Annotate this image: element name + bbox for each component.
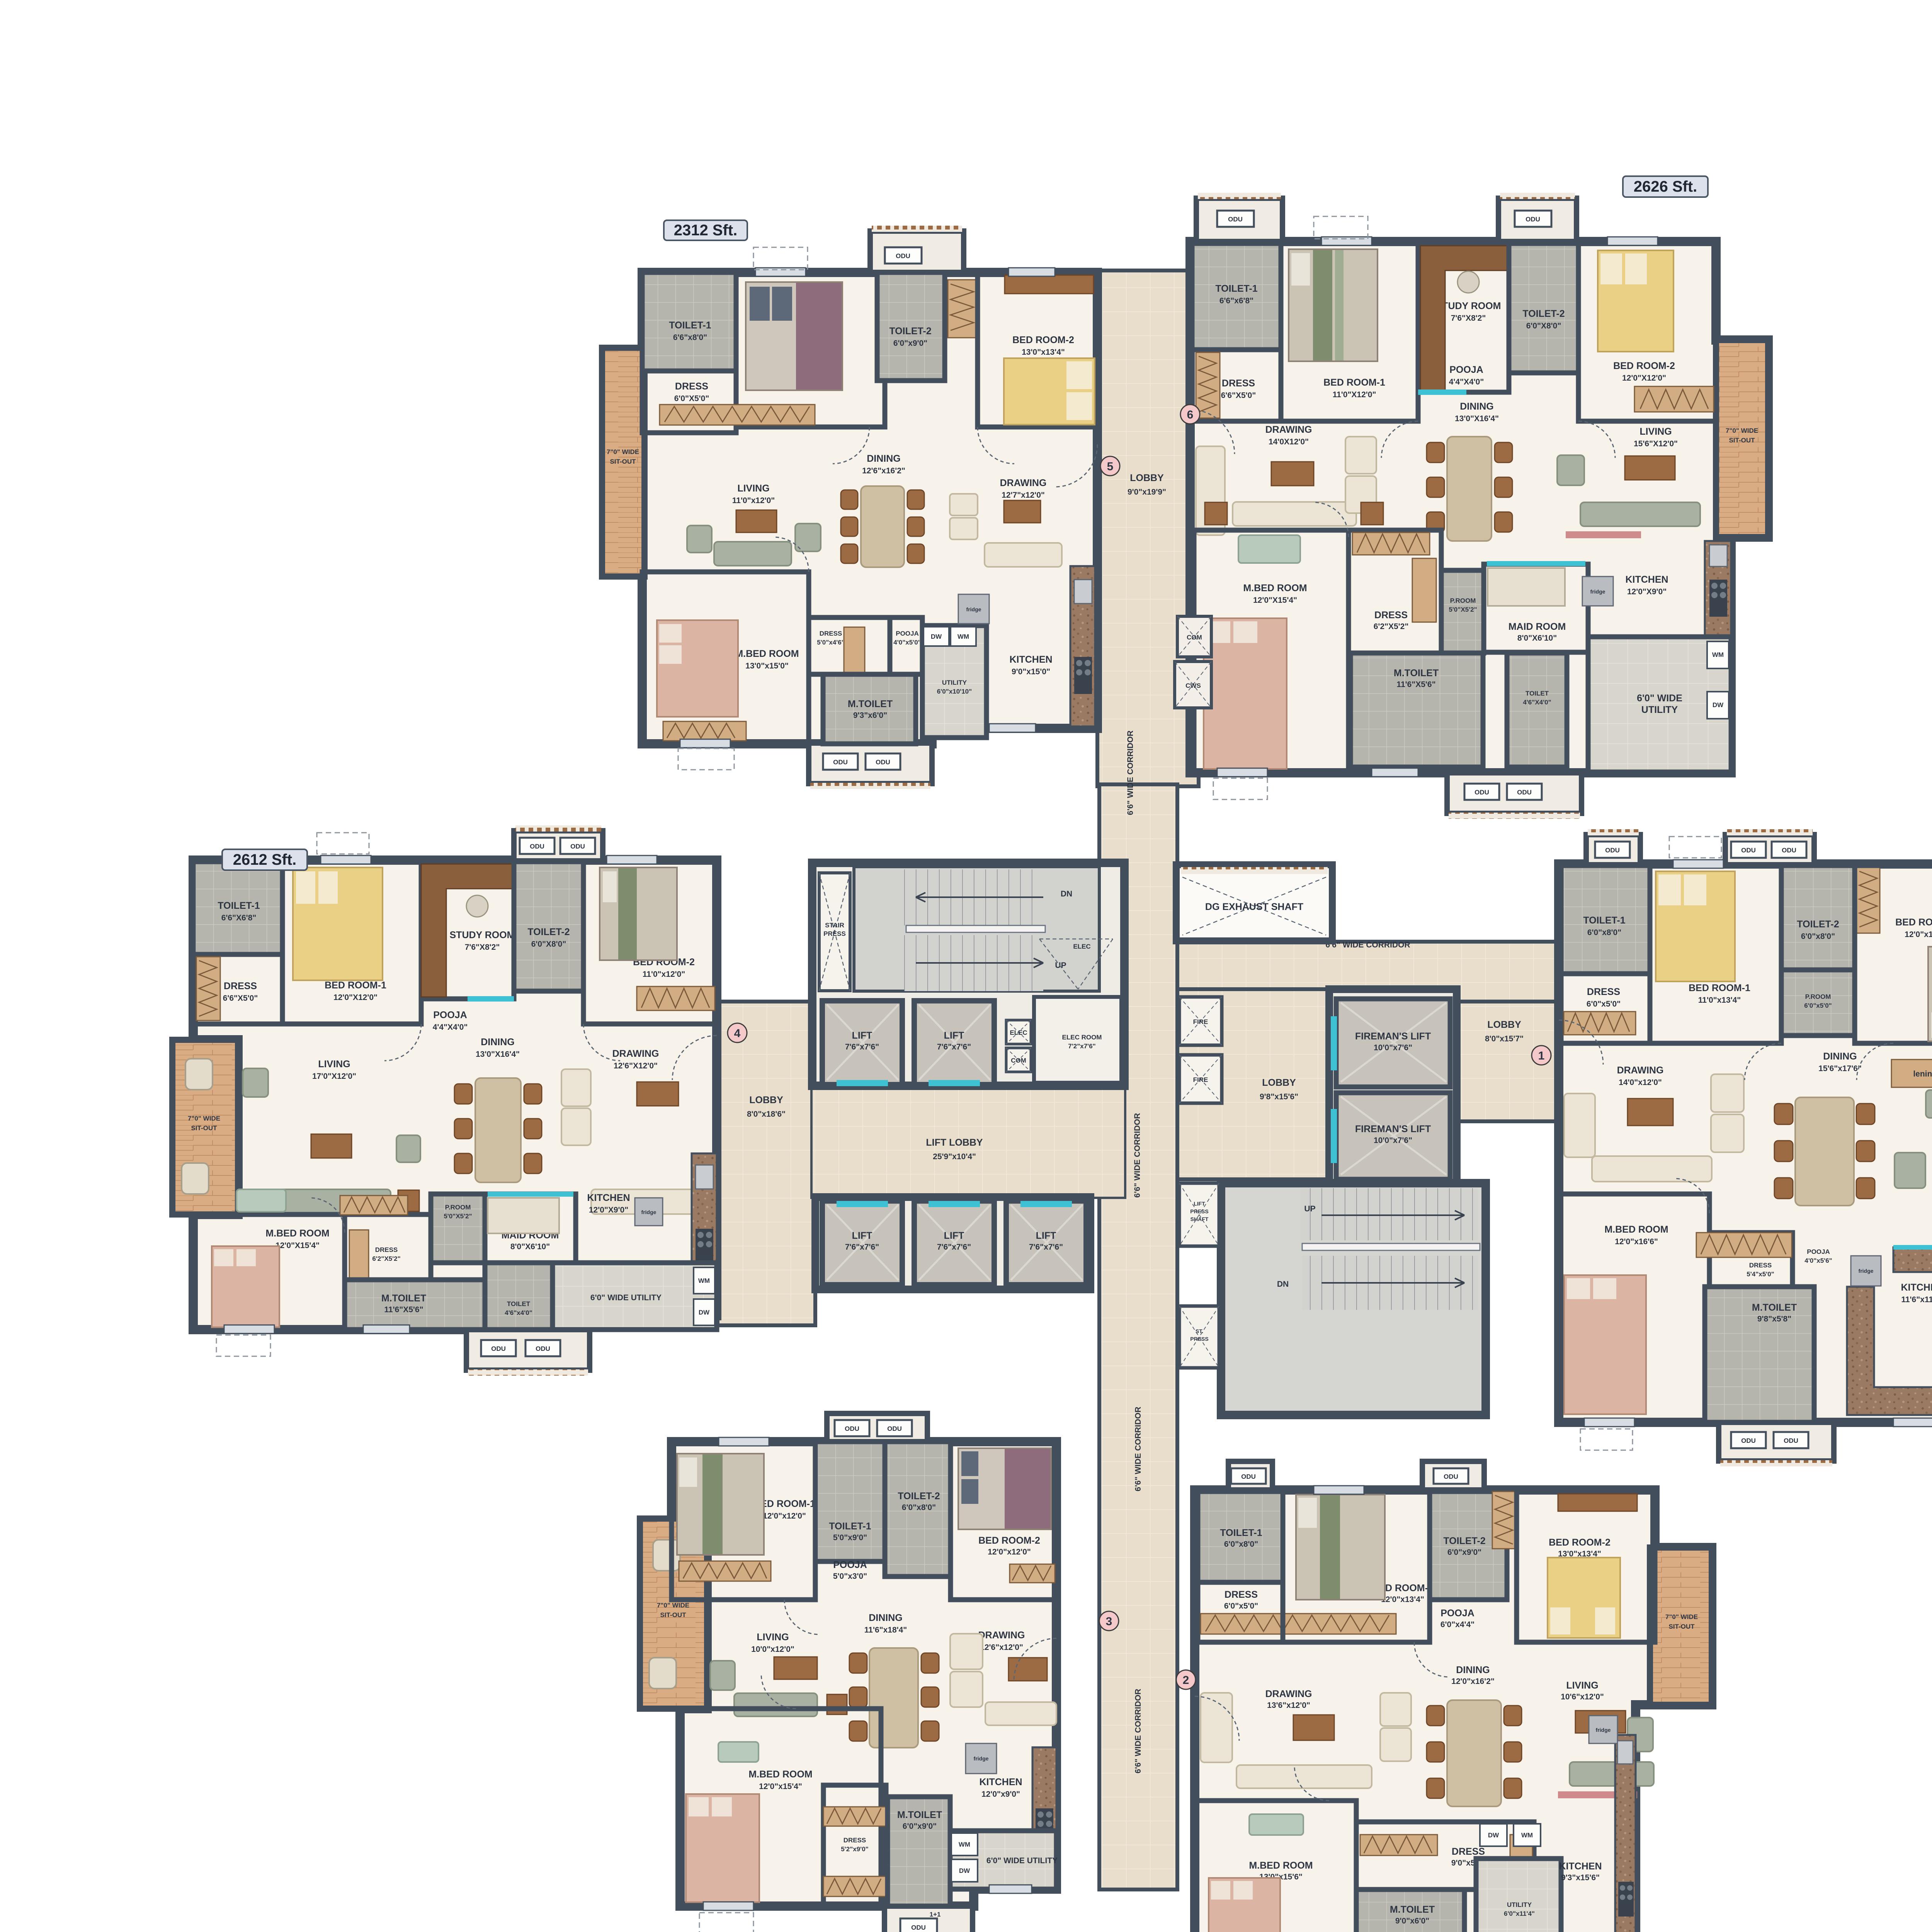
svg-text:2: 2 bbox=[1183, 1674, 1189, 1687]
svg-text:M.BED ROOM: M.BED ROOM bbox=[748, 1769, 812, 1780]
svg-text:ODU: ODU bbox=[1444, 1473, 1458, 1480]
svg-text:DRESS: DRESS bbox=[820, 630, 842, 637]
svg-text:ODU: ODU bbox=[1475, 789, 1489, 796]
svg-text:ODU: ODU bbox=[833, 759, 848, 766]
svg-text:10'0"x7'6": 10'0"x7'6" bbox=[1374, 1043, 1412, 1052]
svg-text:COM: COM bbox=[1187, 634, 1202, 641]
svg-text:25'9"x10'4": 25'9"x10'4" bbox=[933, 1152, 976, 1161]
svg-text:12'0"X9'0": 12'0"X9'0" bbox=[1627, 587, 1667, 596]
svg-text:12'0"X12'0": 12'0"X12'0" bbox=[1622, 374, 1666, 383]
svg-text:DRAWING: DRAWING bbox=[1265, 424, 1312, 435]
svg-text:COM: COM bbox=[1011, 1057, 1026, 1064]
svg-text:5'4"x5'0": 5'4"x5'0" bbox=[1747, 1270, 1774, 1278]
svg-text:8'0"X6'10": 8'0"X6'10" bbox=[1517, 634, 1557, 643]
svg-text:DRESS: DRESS bbox=[1225, 1589, 1258, 1600]
svg-text:6'0"x5'0": 6'0"x5'0" bbox=[1587, 1000, 1621, 1009]
svg-text:M.TOILET: M.TOILET bbox=[1390, 1904, 1435, 1915]
svg-text:TOILET-2: TOILET-2 bbox=[1443, 1536, 1485, 1546]
svg-text:1: 1 bbox=[1538, 1049, 1545, 1062]
svg-text:DRAWING: DRAWING bbox=[1265, 1689, 1312, 1699]
svg-text:UP: UP bbox=[1304, 1204, 1315, 1213]
svg-text:12'0"x16'6": 12'0"x16'6" bbox=[1615, 1237, 1658, 1246]
svg-text:15'6"x17'6": 15'6"x17'6" bbox=[1818, 1064, 1862, 1073]
svg-text:DRAWING: DRAWING bbox=[978, 1630, 1025, 1641]
svg-text:LIFT: LIFT bbox=[944, 1030, 964, 1041]
svg-text:DINING: DINING bbox=[867, 453, 901, 464]
svg-text:LIFT: LIFT bbox=[1194, 1201, 1205, 1207]
svg-text:ODU: ODU bbox=[845, 1425, 859, 1432]
svg-text:7'6"X8'2": 7'6"X8'2" bbox=[465, 943, 500, 952]
svg-text:TOILET-2: TOILET-2 bbox=[527, 927, 570, 937]
svg-text:11'6"X5'6": 11'6"X5'6" bbox=[384, 1305, 423, 1314]
svg-text:fridge: fridge bbox=[1596, 1727, 1611, 1733]
svg-text:TOILET-1: TOILET-1 bbox=[218, 900, 260, 911]
svg-text:6'2"X5'2": 6'2"X5'2" bbox=[372, 1255, 400, 1262]
svg-text:12'7"x12'0": 12'7"x12'0" bbox=[1002, 491, 1045, 500]
svg-text:2312 Sft.: 2312 Sft. bbox=[674, 222, 738, 239]
svg-text:7'6"x7'6": 7'6"x7'6" bbox=[845, 1243, 879, 1252]
svg-text:TOILET-2: TOILET-2 bbox=[898, 1491, 940, 1502]
svg-text:P.ROOM: P.ROOM bbox=[1450, 597, 1476, 604]
svg-text:12'0"x15'4": 12'0"x15'4" bbox=[759, 1782, 802, 1791]
svg-text:7"0" WIDE: 7"0" WIDE bbox=[657, 1602, 689, 1609]
svg-text:BED ROOM-2: BED ROOM-2 bbox=[978, 1535, 1040, 1546]
svg-text:10'6"x12'0": 10'6"x12'0" bbox=[1561, 1692, 1604, 1701]
svg-text:11'6"X5'6": 11'6"X5'6" bbox=[1396, 680, 1435, 689]
svg-text:4: 4 bbox=[734, 1027, 741, 1040]
svg-text:12'0"X12'0": 12'0"X12'0" bbox=[333, 993, 378, 1002]
svg-text:DRAWING: DRAWING bbox=[1617, 1065, 1664, 1076]
svg-text:TOILET-2: TOILET-2 bbox=[1522, 308, 1565, 319]
svg-text:6'0"x9'0": 6'0"x9'0" bbox=[903, 1822, 937, 1831]
svg-text:TOILET-1: TOILET-1 bbox=[669, 320, 711, 331]
svg-text:PRESS: PRESS bbox=[823, 930, 846, 937]
svg-text:7"0" WIDE: 7"0" WIDE bbox=[1665, 1613, 1698, 1621]
svg-text:KITCHEN: KITCHEN bbox=[1901, 1282, 1932, 1293]
svg-text:13'0"X16'4": 13'0"X16'4" bbox=[476, 1050, 520, 1059]
svg-text:3: 3 bbox=[1106, 1615, 1112, 1628]
svg-text:DRESS: DRESS bbox=[224, 981, 257, 992]
svg-text:DRESS: DRESS bbox=[1222, 378, 1255, 389]
svg-text:7'6"x7'6": 7'6"x7'6" bbox=[845, 1043, 879, 1051]
svg-text:DRAWING: DRAWING bbox=[612, 1048, 659, 1059]
svg-text:WM: WM bbox=[959, 1841, 970, 1848]
svg-text:LIFT LOBBY: LIFT LOBBY bbox=[926, 1137, 983, 1148]
svg-text:UTILITY: UTILITY bbox=[1507, 1901, 1532, 1908]
svg-text:15'6"X12'0": 15'6"X12'0" bbox=[1634, 439, 1678, 448]
svg-text:LIVING: LIVING bbox=[1639, 426, 1672, 437]
svg-text:UTILITY: UTILITY bbox=[1641, 704, 1678, 715]
svg-text:7'6"x7'6": 7'6"x7'6" bbox=[937, 1243, 971, 1252]
svg-text:POOJA: POOJA bbox=[833, 1560, 867, 1570]
svg-text:BED ROOM-2: BED ROOM-2 bbox=[1895, 917, 1932, 928]
svg-text:7'2"x7'6": 7'2"x7'6" bbox=[1068, 1043, 1095, 1050]
svg-text:6'6"x6'8": 6'6"x6'8" bbox=[1219, 296, 1253, 305]
svg-text:6'6"X5'0": 6'6"X5'0" bbox=[1221, 391, 1256, 400]
svg-text:DRESS: DRESS bbox=[1587, 986, 1620, 997]
svg-text:M.BED ROOM: M.BED ROOM bbox=[265, 1228, 329, 1239]
svg-text:POOJA: POOJA bbox=[433, 1010, 467, 1020]
svg-text:fridge: fridge bbox=[966, 606, 981, 612]
svg-text:ODU: ODU bbox=[1782, 847, 1796, 854]
svg-text:7"0" WIDE: 7"0" WIDE bbox=[188, 1115, 220, 1122]
svg-text:TOILET: TOILET bbox=[1526, 690, 1549, 697]
svg-text:DW: DW bbox=[959, 1867, 970, 1874]
svg-text:6'0"x9'0": 6'0"x9'0" bbox=[1447, 1548, 1481, 1557]
svg-text:ODU: ODU bbox=[1605, 847, 1620, 854]
svg-text:9'3"x6'0": 9'3"x6'0" bbox=[853, 711, 887, 720]
svg-text:fridge: fridge bbox=[1859, 1268, 1874, 1274]
svg-text:M.TOILET: M.TOILET bbox=[848, 699, 893, 709]
svg-text:8'0"x15'7": 8'0"x15'7" bbox=[1485, 1034, 1524, 1043]
svg-text:DN: DN bbox=[1277, 1280, 1289, 1289]
svg-text:5'0"x9'0": 5'0"x9'0" bbox=[833, 1533, 867, 1542]
svg-text:DINING: DINING bbox=[1823, 1051, 1857, 1062]
svg-text:ODU: ODU bbox=[1741, 1437, 1756, 1444]
svg-text:ST.: ST. bbox=[1196, 1328, 1203, 1334]
svg-text:DW: DW bbox=[1488, 1832, 1499, 1839]
svg-text:6'0"X8'0": 6'0"X8'0" bbox=[531, 940, 566, 949]
svg-text:9'8"x15'6": 9'8"x15'6" bbox=[1260, 1092, 1298, 1101]
svg-text:TOILET: TOILET bbox=[507, 1300, 531, 1308]
svg-text:9'0"x15'0": 9'0"x15'0" bbox=[1012, 667, 1050, 676]
svg-text:SIT-OUT: SIT-OUT bbox=[660, 1611, 686, 1619]
svg-text:PRESS: PRESS bbox=[1190, 1208, 1208, 1214]
svg-text:12'0"X15'4": 12'0"X15'4" bbox=[276, 1241, 320, 1250]
svg-text:DW: DW bbox=[1713, 701, 1724, 709]
svg-text:STUDY ROOM: STUDY ROOM bbox=[450, 930, 515, 940]
svg-text:LIVING: LIVING bbox=[318, 1059, 350, 1070]
svg-text:6'0" WIDE: 6'0" WIDE bbox=[1637, 693, 1682, 704]
svg-text:4'6"x4'0": 4'6"x4'0" bbox=[505, 1309, 532, 1316]
svg-text:13'0"x13'4": 13'0"x13'4" bbox=[1022, 348, 1065, 357]
svg-text:12'6"x16'2": 12'6"x16'2" bbox=[862, 466, 905, 475]
svg-text:DG EXHAUST SHAFT: DG EXHAUST SHAFT bbox=[1205, 901, 1303, 912]
svg-text:11'6"x18'4": 11'6"x18'4" bbox=[864, 1626, 907, 1634]
svg-text:6'6"x8'0": 6'6"x8'0" bbox=[673, 333, 707, 342]
svg-text:DRESS: DRESS bbox=[675, 381, 708, 392]
svg-text:6'0"x8'0": 6'0"x8'0" bbox=[1224, 1540, 1258, 1549]
svg-text:ODU: ODU bbox=[1784, 1437, 1798, 1444]
svg-text:11'0"x12'0": 11'0"x12'0" bbox=[732, 496, 775, 505]
svg-text:TOILET-1: TOILET-1 bbox=[1583, 915, 1625, 926]
svg-text:12'6"x12'0": 12'6"x12'0" bbox=[980, 1643, 1023, 1652]
svg-text:M.TOILET: M.TOILET bbox=[381, 1293, 426, 1304]
svg-text:5'0"x3'0": 5'0"x3'0" bbox=[833, 1572, 867, 1581]
svg-text:BED ROOM-1: BED ROOM-1 bbox=[325, 980, 386, 991]
svg-text:12'0"x12'0": 12'0"x12'0" bbox=[988, 1548, 1031, 1556]
svg-text:11'0"X12'0": 11'0"X12'0" bbox=[1333, 390, 1376, 399]
svg-text:LIVING: LIVING bbox=[1566, 1680, 1598, 1691]
svg-text:KITCHEN: KITCHEN bbox=[1625, 574, 1668, 585]
svg-text:5: 5 bbox=[1107, 460, 1114, 473]
svg-text:DINING: DINING bbox=[1460, 401, 1494, 412]
svg-text:SHAFT: SHAFT bbox=[1190, 1216, 1209, 1222]
svg-text:ELEC ROOM: ELEC ROOM bbox=[1062, 1034, 1102, 1041]
svg-text:6'0"X8'0": 6'0"X8'0" bbox=[1526, 321, 1561, 330]
svg-text:DN: DN bbox=[1061, 889, 1072, 898]
svg-text:2612 Sft.: 2612 Sft. bbox=[233, 851, 297, 868]
svg-text:UTILITY: UTILITY bbox=[942, 679, 967, 686]
svg-text:LIFT: LIFT bbox=[852, 1030, 872, 1041]
svg-text:M.BED ROOM: M.BED ROOM bbox=[1604, 1224, 1668, 1235]
svg-text:12'0"X9'0": 12'0"X9'0" bbox=[589, 1206, 628, 1214]
svg-text:BED ROOM-2: BED ROOM-2 bbox=[1613, 361, 1675, 371]
svg-text:14'0"x12'0": 14'0"x12'0" bbox=[1619, 1078, 1662, 1087]
svg-text:WM: WM bbox=[1712, 651, 1724, 658]
svg-text:fridge: fridge bbox=[974, 1755, 989, 1762]
svg-text:6'0"x8'0": 6'0"x8'0" bbox=[902, 1503, 936, 1512]
svg-text:POOJA: POOJA bbox=[1440, 1608, 1475, 1619]
svg-text:12'0"x12'0": 12'0"x12'0" bbox=[763, 1512, 806, 1520]
svg-text:BED ROOM-1: BED ROOM-1 bbox=[1323, 377, 1385, 388]
svg-text:DRESS: DRESS bbox=[1749, 1262, 1772, 1269]
svg-text:12'0"x16'2": 12'0"x16'2" bbox=[1451, 1677, 1495, 1686]
svg-text:6'0"x5'0": 6'0"x5'0" bbox=[1224, 1602, 1258, 1611]
svg-text:9'0"x19'9": 9'0"x19'9" bbox=[1128, 488, 1166, 497]
svg-text:KITCHEN: KITCHEN bbox=[1009, 654, 1052, 665]
svg-text:ODU: ODU bbox=[530, 843, 544, 850]
svg-text:2626 Sft.: 2626 Sft. bbox=[1634, 178, 1697, 195]
svg-text:ODU: ODU bbox=[570, 843, 585, 850]
svg-text:FIRE: FIRE bbox=[1193, 1076, 1208, 1083]
svg-text:FIRE: FIRE bbox=[1193, 1018, 1208, 1026]
svg-text:WM: WM bbox=[698, 1277, 710, 1284]
svg-text:SIT-OUT: SIT-OUT bbox=[191, 1124, 217, 1132]
svg-text:BED ROOM-1: BED ROOM-1 bbox=[1689, 983, 1750, 993]
svg-text:BED ROOM-2: BED ROOM-2 bbox=[1012, 335, 1074, 345]
svg-text:ODU: ODU bbox=[896, 252, 910, 260]
svg-text:M.BED ROOM: M.BED ROOM bbox=[1249, 1860, 1313, 1871]
svg-text:4'6"X4'0": 4'6"X4'0" bbox=[1523, 699, 1551, 706]
svg-text:5'0"X5'2": 5'0"X5'2" bbox=[444, 1213, 472, 1220]
svg-text:5'2"x9'0": 5'2"x9'0" bbox=[841, 1845, 868, 1853]
svg-text:6: 6 bbox=[1187, 408, 1194, 421]
svg-text:LOBBY: LOBBY bbox=[1487, 1019, 1521, 1030]
svg-text:M.TOILET: M.TOILET bbox=[1394, 668, 1439, 679]
svg-text:DW: DW bbox=[931, 633, 942, 640]
svg-text:ODU: ODU bbox=[876, 759, 890, 766]
svg-text:6'6" WIDE CORRIDOR: 6'6" WIDE CORRIDOR bbox=[1325, 940, 1410, 949]
svg-text:TOILET-1: TOILET-1 bbox=[829, 1521, 871, 1532]
svg-text:LIVING: LIVING bbox=[757, 1632, 789, 1643]
svg-text:5'0"x4'6": 5'0"x4'6" bbox=[817, 639, 844, 646]
svg-text:12'0"x13'4": 12'0"x13'4" bbox=[1381, 1595, 1424, 1604]
svg-text:6'0"x8'0": 6'0"x8'0" bbox=[1801, 932, 1835, 941]
svg-text:ODU: ODU bbox=[1517, 789, 1532, 796]
svg-text:DRESS: DRESS bbox=[1374, 610, 1408, 621]
svg-text:KITCHEN: KITCHEN bbox=[1559, 1861, 1602, 1872]
svg-text:6'0"x9'0": 6'0"x9'0" bbox=[893, 339, 927, 348]
svg-text:KITCHEN: KITCHEN bbox=[587, 1192, 630, 1203]
svg-text:lenin unit: lenin unit bbox=[1913, 1070, 1932, 1078]
svg-text:TOILET-2: TOILET-2 bbox=[1797, 919, 1839, 930]
svg-text:LIFT: LIFT bbox=[852, 1230, 872, 1241]
svg-text:DINING: DINING bbox=[481, 1037, 515, 1048]
svg-text:POOJA: POOJA bbox=[1449, 364, 1483, 375]
svg-text:1+1: 1+1 bbox=[930, 1911, 941, 1918]
svg-text:KITCHEN: KITCHEN bbox=[979, 1777, 1022, 1787]
svg-text:4'0"x5'6": 4'0"x5'6" bbox=[1804, 1257, 1832, 1264]
svg-text:8'0"X6'10": 8'0"X6'10" bbox=[510, 1242, 550, 1251]
svg-text:DRESS: DRESS bbox=[375, 1246, 398, 1253]
svg-text:WM: WM bbox=[1521, 1832, 1533, 1839]
svg-text:7'6"x7'6": 7'6"x7'6" bbox=[937, 1043, 971, 1051]
svg-text:6'0" WIDE UTILITY: 6'0" WIDE UTILITY bbox=[590, 1293, 662, 1302]
svg-text:LIVING: LIVING bbox=[737, 483, 769, 494]
svg-text:10'0"x12'0": 10'0"x12'0" bbox=[751, 1645, 794, 1654]
svg-text:6'6" WIDE CORRIDOR: 6'6" WIDE CORRIDOR bbox=[1134, 1689, 1143, 1773]
svg-text:WM: WM bbox=[957, 633, 969, 640]
svg-text:12'6"X12'0": 12'6"X12'0" bbox=[614, 1061, 658, 1070]
svg-text:ODU: ODU bbox=[536, 1345, 550, 1352]
svg-text:M.TOILET: M.TOILET bbox=[1752, 1302, 1797, 1313]
svg-text:PRESS: PRESS bbox=[1190, 1336, 1208, 1342]
svg-text:6'0"x11'4": 6'0"x11'4" bbox=[1504, 1910, 1535, 1917]
svg-text:6'6" WIDE CORRIDOR: 6'6" WIDE CORRIDOR bbox=[1133, 1113, 1142, 1197]
svg-text:6'6"X6'8": 6'6"X6'8" bbox=[221, 913, 257, 922]
svg-text:LIFT: LIFT bbox=[1036, 1230, 1056, 1241]
svg-text:6'6" WIDE CORRIDOR: 6'6" WIDE CORRIDOR bbox=[1134, 1406, 1143, 1491]
svg-text:11'0"x12'0": 11'0"x12'0" bbox=[643, 970, 685, 979]
svg-text:LOBBY: LOBBY bbox=[749, 1095, 783, 1105]
svg-text:DINING: DINING bbox=[1456, 1665, 1490, 1675]
svg-text:LOBBY: LOBBY bbox=[1130, 473, 1164, 483]
svg-text:BED ROOM-2: BED ROOM-2 bbox=[1549, 1537, 1611, 1548]
svg-text:11'6"x11'0": 11'6"x11'0" bbox=[1901, 1295, 1932, 1304]
svg-text:4'0"x5'0": 4'0"x5'0" bbox=[893, 639, 921, 646]
svg-text:DINING: DINING bbox=[869, 1612, 903, 1623]
svg-text:6'0"x8'0": 6'0"x8'0" bbox=[1587, 928, 1621, 937]
svg-text:SIT-OUT: SIT-OUT bbox=[1668, 1623, 1695, 1630]
svg-text:DRESS: DRESS bbox=[844, 1837, 866, 1844]
svg-text:4'4"X4'0": 4'4"X4'0" bbox=[1449, 378, 1484, 386]
svg-text:POOJA: POOJA bbox=[1807, 1248, 1830, 1255]
svg-text:7"0" WIDE: 7"0" WIDE bbox=[607, 448, 639, 456]
svg-text:UP: UP bbox=[1055, 961, 1066, 970]
svg-text:fridge: fridge bbox=[1590, 588, 1605, 595]
svg-text:FIREMAN'S LIFT: FIREMAN'S LIFT bbox=[1355, 1124, 1431, 1134]
svg-text:13'0"X16'4": 13'0"X16'4" bbox=[1455, 414, 1499, 423]
svg-text:7'6"x7'6": 7'6"x7'6" bbox=[1029, 1243, 1063, 1252]
svg-text:ELEC: ELEC bbox=[1073, 943, 1090, 950]
svg-text:fridge: fridge bbox=[641, 1209, 656, 1215]
svg-text:P.ROOM: P.ROOM bbox=[1805, 993, 1831, 1000]
svg-text:MAID ROOM: MAID ROOM bbox=[1509, 621, 1566, 632]
svg-text:TOILET-1: TOILET-1 bbox=[1220, 1527, 1262, 1538]
svg-text:TOILET-1: TOILET-1 bbox=[1215, 283, 1257, 294]
svg-text:CWS: CWS bbox=[1185, 682, 1201, 689]
svg-text:6'0"x4'4": 6'0"x4'4" bbox=[1440, 1620, 1475, 1629]
svg-text:9'8"x5'8": 9'8"x5'8" bbox=[1757, 1315, 1791, 1323]
svg-text:7'6"X8'2": 7'6"X8'2" bbox=[1451, 314, 1486, 323]
svg-text:7"0" WIDE: 7"0" WIDE bbox=[1726, 427, 1758, 434]
svg-text:STAIR: STAIR bbox=[825, 922, 844, 929]
svg-text:13'6"x12'0": 13'6"x12'0" bbox=[1267, 1701, 1310, 1710]
svg-text:12'0"x9'0": 12'0"x9'0" bbox=[981, 1790, 1020, 1799]
svg-text:LIFT: LIFT bbox=[944, 1230, 964, 1241]
svg-text:13'0"x15'0": 13'0"x15'0" bbox=[745, 662, 789, 670]
svg-text:ODU: ODU bbox=[911, 1924, 926, 1931]
svg-text:TOILET-2: TOILET-2 bbox=[889, 326, 931, 337]
svg-text:6'2"X5'2": 6'2"X5'2" bbox=[1374, 622, 1409, 631]
svg-text:6'0" WIDE UTILITY: 6'0" WIDE UTILITY bbox=[986, 1856, 1058, 1865]
svg-text:6'0"x10'10": 6'0"x10'10" bbox=[937, 688, 972, 695]
svg-text:6'6"X5'0": 6'6"X5'0" bbox=[223, 994, 258, 1003]
svg-text:6'0"x5'0": 6'0"x5'0" bbox=[1804, 1002, 1832, 1009]
svg-text:12'0"x13'4": 12'0"x13'4" bbox=[1905, 930, 1932, 939]
svg-text:ODU: ODU bbox=[887, 1425, 902, 1432]
svg-text:ODU: ODU bbox=[1741, 847, 1756, 854]
svg-text:ODU: ODU bbox=[491, 1345, 506, 1352]
svg-text:6'0"X5'0": 6'0"X5'0" bbox=[674, 394, 709, 403]
svg-text:ODU: ODU bbox=[1241, 1473, 1256, 1480]
svg-text:SIT-OUT: SIT-OUT bbox=[610, 458, 636, 465]
svg-text:4'4"X4'0": 4'4"X4'0" bbox=[433, 1023, 468, 1032]
svg-text:M.BED ROOM: M.BED ROOM bbox=[735, 648, 799, 659]
svg-text:LOBBY: LOBBY bbox=[1262, 1077, 1296, 1088]
svg-text:P.ROOM: P.ROOM bbox=[445, 1204, 471, 1211]
svg-text:10'0"x7'6": 10'0"x7'6" bbox=[1374, 1136, 1412, 1145]
svg-text:14'0X12'0": 14'0X12'0" bbox=[1269, 437, 1309, 446]
svg-text:M.TOILET: M.TOILET bbox=[897, 1810, 942, 1820]
svg-text:9'3"x15'6": 9'3"x15'6" bbox=[1561, 1873, 1600, 1882]
svg-text:17'0"X12'0": 17'0"X12'0" bbox=[312, 1072, 356, 1081]
svg-text:ODU: ODU bbox=[1228, 216, 1243, 223]
svg-text:12'0"X15'4": 12'0"X15'4" bbox=[1253, 596, 1297, 605]
svg-text:SIT-OUT: SIT-OUT bbox=[1729, 437, 1755, 444]
svg-text:6'6" WIDE CORRIDOR: 6'6" WIDE CORRIDOR bbox=[1126, 730, 1135, 815]
svg-text:DW: DW bbox=[699, 1309, 710, 1316]
svg-text:M.BED ROOM: M.BED ROOM bbox=[1243, 583, 1307, 594]
svg-text:9'0"x6'0": 9'0"x6'0" bbox=[1395, 1917, 1429, 1925]
svg-text:DRAWING: DRAWING bbox=[1000, 478, 1047, 488]
svg-text:11'0"x13'4": 11'0"x13'4" bbox=[1698, 996, 1741, 1005]
svg-text:ELEC: ELEC bbox=[1010, 1029, 1027, 1036]
svg-text:ODU: ODU bbox=[1526, 216, 1540, 223]
svg-text:DRESS: DRESS bbox=[1452, 1846, 1485, 1857]
svg-text:8'0"x18'6": 8'0"x18'6" bbox=[747, 1110, 786, 1119]
svg-text:5'0"X5'2": 5'0"X5'2" bbox=[1449, 606, 1477, 613]
svg-text:FIREMAN'S LIFT: FIREMAN'S LIFT bbox=[1355, 1031, 1431, 1042]
svg-text:POOJA: POOJA bbox=[896, 630, 919, 637]
